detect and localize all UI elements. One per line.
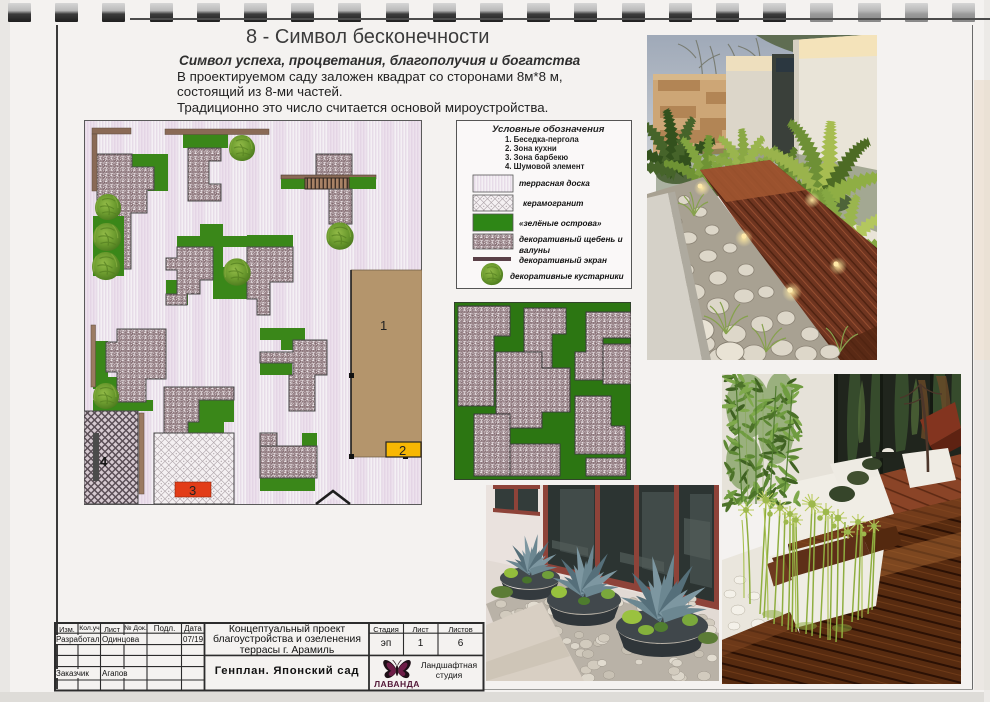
- svg-text:2: 2: [399, 443, 406, 458]
- svg-text:3: 3: [189, 483, 196, 498]
- svg-text:1: 1: [380, 318, 387, 333]
- svg-text:4: 4: [100, 454, 108, 469]
